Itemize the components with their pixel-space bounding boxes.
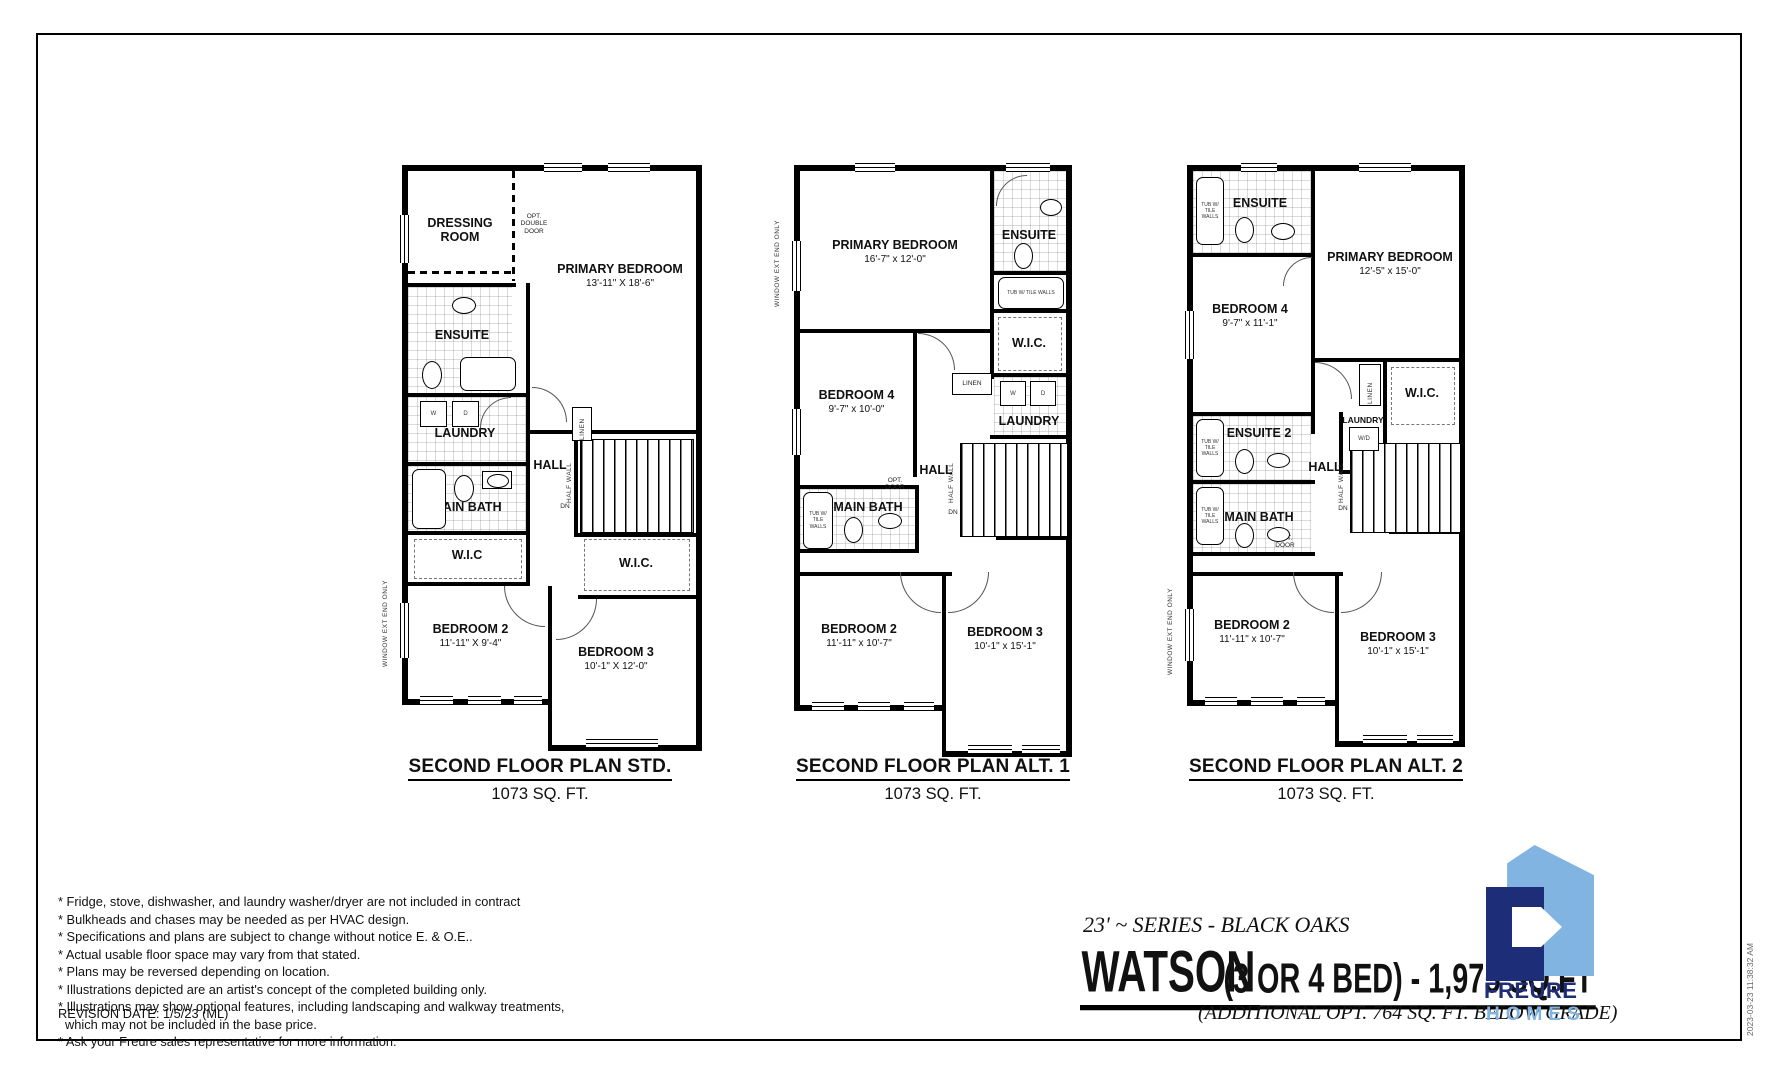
room-primary-bedroom: PRIMARY BEDROOM12'-5" x 15'-0": [1321, 251, 1459, 277]
door-swing: [948, 572, 989, 613]
window-icon: [1022, 745, 1060, 754]
wall: [990, 435, 1066, 439]
window-icon: [792, 241, 801, 291]
room-bedroom3: BEDROOM 310'-1" x 15'-1": [946, 626, 1064, 652]
toilet-icon: [1235, 523, 1254, 548]
room-dressing: DRESSING ROOM: [410, 217, 510, 245]
tub-icon: TUB W/ TILE WALLS: [803, 492, 833, 549]
room-hall: HALL: [1295, 461, 1355, 475]
wall: [800, 549, 919, 553]
wall: [408, 462, 526, 466]
room-laundry: LAUNDRY: [992, 415, 1066, 429]
window-icon: [1205, 697, 1237, 706]
sink-icon: [1271, 223, 1295, 240]
plot-timestamp: 2023-03-23 11:38:32 AM: [1745, 846, 1755, 1036]
door-swing: [532, 387, 567, 422]
linen-closet: LINEN: [1359, 364, 1381, 406]
window-icon: [400, 215, 409, 263]
room-laundry: LAUNDRY: [418, 427, 512, 441]
floorplan-alt2: HALF WALL DN LINEN ENSUITE TUB W/ TILE W…: [1187, 165, 1465, 747]
sink-icon: [487, 474, 509, 488]
room-wic-left: W.I.C: [416, 549, 518, 563]
window-icon: [792, 409, 801, 455]
staircase: [1350, 443, 1461, 533]
window-icon: [1185, 609, 1194, 661]
tub-icon: TUB W/ TILE WALLS: [1196, 177, 1224, 245]
window-icon: [1241, 163, 1277, 172]
window-icon: [400, 603, 409, 658]
linen-label: LINEN: [957, 380, 987, 387]
room-main-bath: MAIN BATH: [1211, 511, 1307, 525]
door-swing: [556, 599, 597, 640]
disclaimer-line: * Specifications and plans are subject t…: [58, 928, 564, 946]
wall: [408, 283, 516, 287]
disclaimer-notes: * Fridge, stove, dishwasher, and laundry…: [58, 893, 564, 1051]
toilet-icon: [1235, 449, 1254, 474]
plan-alt2-caption: SECOND FLOOR PLAN ALT. 2 1073 SQ. FT.: [1187, 756, 1465, 804]
window-ext-note: WINDOW EXT END ONLY: [1167, 595, 1174, 675]
room-primary-bedroom: PRIMARY BEDROOM16'-7" x 12'-0": [812, 239, 978, 265]
wall: [1193, 552, 1315, 556]
dryer-icon: D: [452, 401, 479, 427]
door-swing: [504, 586, 545, 627]
linen-closet: LINEN: [952, 373, 992, 395]
building-step: [1187, 700, 1335, 758]
room-ensuite2: ENSUITE 2: [1213, 427, 1305, 441]
plan-alt2-title: SECOND FLOOR PLAN ALT. 2: [1189, 756, 1463, 781]
linen-closet: LINEN: [572, 407, 592, 441]
window-icon: [586, 739, 658, 748]
door-swing: [1283, 257, 1312, 286]
window-icon: [1006, 163, 1050, 172]
room-main-bath: MAIN BATH: [822, 501, 914, 515]
toilet-icon: [454, 475, 474, 502]
door-swing: [900, 572, 941, 613]
sink-icon: [878, 513, 902, 529]
disclaimer-line: * Fridge, stove, dishwasher, and laundry…: [58, 893, 564, 911]
window-icon: [1417, 735, 1453, 744]
wall: [990, 373, 1066, 377]
disclaimer-line: * Illustrations depicted are an artist's…: [58, 981, 564, 999]
wall: [1193, 412, 1315, 416]
room-bedroom2: BEDROOM 211'-11" x 10'-7": [800, 623, 918, 649]
plan-std-title: SECOND FLOOR PLAN STD.: [408, 756, 671, 781]
window-icon: [855, 163, 895, 172]
stairs-dn-label: DN: [1336, 505, 1350, 512]
door-swing: [1293, 572, 1334, 613]
logo-text-homes: HOMES: [1486, 1004, 1586, 1026]
disclaimer-line: * Ask your Freure sales representative f…: [58, 1033, 564, 1051]
disclaimer-line: * Actual usable floor space may vary fro…: [58, 946, 564, 964]
room-bedroom3: BEDROOM 310'-1" x 15'-1": [1339, 631, 1457, 657]
room-hall: HALL: [520, 459, 580, 473]
room-wic: W.I.C.: [1387, 387, 1457, 401]
washer-icon: W: [420, 401, 447, 427]
linen-label: LINEN: [579, 410, 586, 440]
wall: [942, 572, 946, 751]
staircase: [960, 443, 1068, 537]
toilet-icon: [844, 517, 863, 543]
wall: [913, 333, 917, 477]
stairs-dn-label: DN: [946, 509, 960, 516]
window-icon: [1185, 311, 1194, 359]
room-ensuite: ENSUITE: [992, 229, 1066, 243]
door-swing: [918, 333, 955, 370]
room-laundry: LAUNDRY: [1339, 415, 1387, 425]
window-icon: [1297, 697, 1325, 706]
wall: [526, 430, 696, 434]
stairs-dn-label: DN: [558, 503, 572, 510]
half-wall-note: HALF WALL: [566, 443, 573, 503]
toilet-icon: [1014, 243, 1033, 269]
room-bedroom4: BEDROOM 49'-7" x 10'-0": [800, 389, 913, 415]
window-icon: [608, 163, 650, 172]
room-ensuite: ENSUITE: [1215, 197, 1305, 211]
dryer-icon: D: [1030, 381, 1056, 406]
revision-date: REVISION DATE: 1/5/23 (ML): [58, 1006, 228, 1021]
wall: [1383, 362, 1387, 454]
half-wall-note: HALF WALL: [1338, 447, 1345, 503]
window-icon: [1363, 735, 1407, 744]
window-icon: [468, 696, 501, 705]
wall: [915, 489, 919, 549]
logo-text-freure: FREURE: [1484, 978, 1577, 1004]
disclaimer-line: * Plans may be reversed depending on loc…: [58, 963, 564, 981]
wall: [800, 329, 994, 333]
staircase: [580, 439, 694, 533]
building-step: [402, 699, 548, 763]
plan-alt2-area: 1073 SQ. FT.: [1187, 785, 1465, 804]
linen-label: LINEN: [1367, 368, 1374, 404]
room-hall: HALL: [906, 464, 966, 478]
window-icon: [420, 696, 453, 705]
wall: [574, 533, 696, 537]
window-icon: [858, 702, 890, 711]
room-bedroom2: BEDROOM 211'-11" x 10'-7": [1193, 619, 1311, 645]
wall: [990, 271, 1066, 275]
toilet-icon: [1235, 217, 1254, 243]
floorplan-alt1: HALF WALL DN LINEN PRIMARY BEDROOM16'-7"…: [794, 165, 1072, 757]
opt-wall: [408, 271, 512, 274]
toilet-icon: [422, 361, 442, 389]
window-icon: [1251, 697, 1283, 706]
wall: [990, 309, 1066, 313]
plan-alt1-caption: SECOND FLOOR PLAN ALT. 1 1073 SQ. FT.: [794, 756, 1072, 804]
room-bedroom4: BEDROOM 49'-7" x 11'-1": [1193, 303, 1307, 329]
disclaimer-line: * Bulkheads and chases may be needed as …: [58, 911, 564, 929]
room-wic: W.I.C.: [992, 337, 1066, 351]
wall: [548, 586, 552, 745]
tub-icon: [460, 357, 516, 391]
tub-icon: [412, 469, 446, 529]
window-icon: [812, 702, 844, 711]
door-swing: [1315, 362, 1352, 399]
window-icon: [1359, 163, 1411, 172]
wall: [408, 531, 526, 535]
window-icon: [514, 696, 542, 705]
opt-double-door-note: OPT. DOUBLE DOOR: [514, 213, 554, 235]
sink-icon: [1040, 199, 1062, 216]
window-icon: [904, 702, 934, 711]
door-swing: [1341, 572, 1382, 613]
window-icon: [544, 163, 582, 172]
sink-icon: [1267, 527, 1290, 542]
wall: [1193, 253, 1315, 257]
wall: [574, 434, 578, 537]
plan-alt1-title: SECOND FLOOR PLAN ALT. 1: [796, 756, 1070, 781]
freure-homes-logo: FREURE HOMES: [1484, 845, 1596, 1031]
sink-icon: [1267, 453, 1290, 468]
floorplan-std: HALF WALL DN LINEN DRESSING ROOM OPT. DO…: [402, 165, 702, 751]
washer-dryer-icon: W/D: [1349, 427, 1379, 451]
window-icon: [968, 745, 1012, 754]
window-ext-note: WINDOW EXT END ONLY: [382, 587, 389, 667]
sink-icon: [452, 297, 476, 314]
building-step: [794, 705, 942, 763]
room-ensuite: ENSUITE: [416, 329, 508, 343]
tub-icon: TUB W/ TILE WALLS: [1196, 419, 1224, 477]
room-primary-bedroom: PRIMARY BEDROOM13'-11" X 18'-6": [546, 263, 694, 289]
washer-icon: W: [1000, 381, 1026, 406]
window-ext-note: WINDOW EXT END ONLY: [774, 227, 781, 307]
plan-alt1-area: 1073 SQ. FT.: [794, 785, 1072, 804]
plan-std-caption: SECOND FLOOR PLAN STD. 1073 SQ. FT.: [390, 756, 690, 804]
wall: [1193, 480, 1315, 484]
opt-door-note: OPT. DOOR: [878, 477, 912, 492]
tub-icon: TUB W/ TILE WALLS: [1196, 487, 1224, 545]
room-bedroom3: BEDROOM 310'-1" X 12'-0": [556, 646, 676, 672]
room-wic-right: W.I.C.: [584, 557, 688, 571]
room-bedroom2: BEDROOM 211'-11" X 9'-4": [413, 623, 528, 649]
plan-std-area: 1073 SQ. FT.: [390, 785, 690, 804]
tub-icon: TUB W/ TILE WALLS: [998, 277, 1064, 309]
series-name: 23' ~ SERIES - BLACK OAKS: [1083, 912, 1350, 938]
